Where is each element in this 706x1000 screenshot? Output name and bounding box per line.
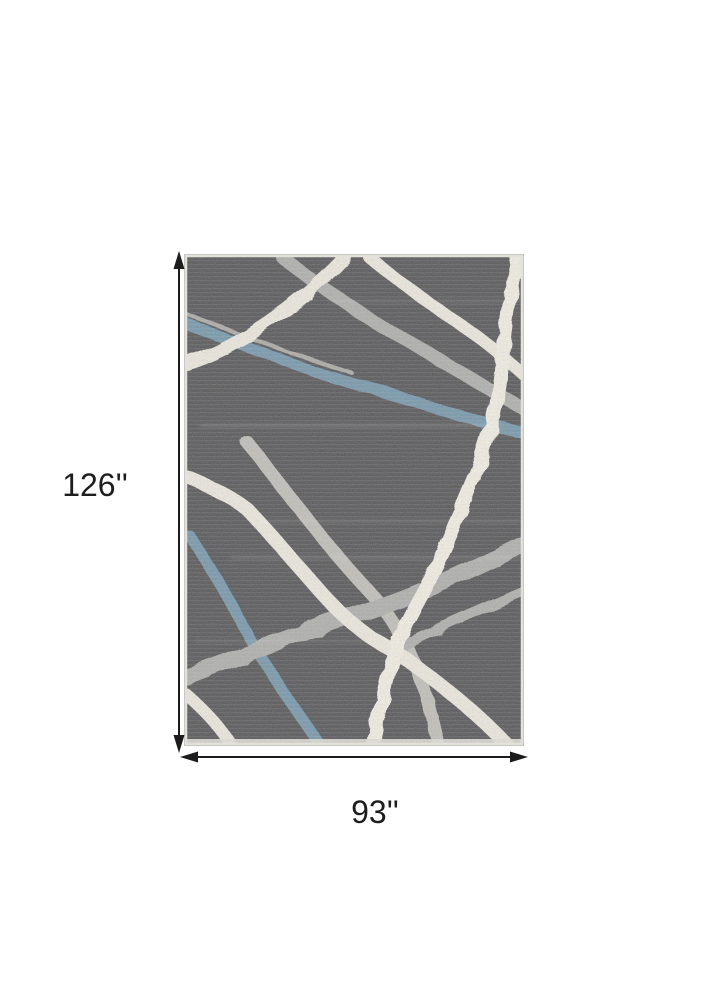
rug-image — [185, 255, 524, 748]
height-dimension-label: 126'' — [35, 467, 155, 503]
arrowhead-down-icon — [174, 735, 185, 753]
light-grain-overlay — [185, 255, 523, 745]
arrowhead-up-icon — [174, 251, 185, 269]
width-dimension-label: 93'' — [313, 794, 437, 830]
arrowhead-right-icon — [510, 752, 528, 763]
product-dimension-figure: 126'' 93'' — [0, 0, 706, 1000]
arrowhead-left-icon — [180, 752, 198, 763]
